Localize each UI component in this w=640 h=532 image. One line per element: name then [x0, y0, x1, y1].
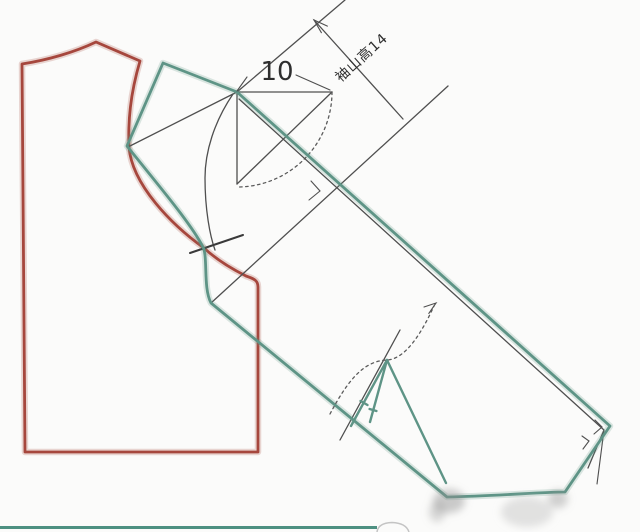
- armhole-shaping-curve: [205, 94, 233, 250]
- bodice-piece: [22, 42, 258, 452]
- bicep-line: [211, 86, 448, 303]
- pattern-canvas: 袖山高14 10: [0, 0, 640, 532]
- dotted-curve-arrowhead: [424, 303, 436, 313]
- sleeve-outline: [127, 63, 610, 497]
- bodice-outline: [22, 42, 258, 452]
- dart-leg-1: [351, 360, 387, 426]
- shoulder-extension-label: 10: [260, 57, 293, 87]
- sleeve-inner-construction-line: [239, 99, 604, 468]
- dart-center-line: [387, 360, 446, 483]
- smudge-blob-4: [429, 502, 445, 522]
- label-leader-right: [296, 75, 330, 90]
- page-bottom-edge: [0, 523, 409, 532]
- elbow-shaping-dotted-curve: [330, 306, 434, 414]
- sleeve-piece: [127, 63, 610, 497]
- pattern-drafting-diagram: 袖山高14 10: [0, 0, 640, 532]
- smudge-blob-2: [501, 497, 553, 527]
- bottom-rounded-tab: [377, 523, 409, 532]
- smudge-blob-3: [548, 490, 568, 508]
- sleeve-cap-height-label: 袖山高14: [332, 30, 392, 86]
- right-angle-mark-cuff-bottom: [582, 436, 589, 449]
- right-angle-mark-bicep: [309, 181, 320, 200]
- dimension-annotations: 袖山高14 10: [237, 20, 436, 414]
- dart-tick-2: [370, 409, 377, 411]
- bodice-outline-glow: [22, 42, 258, 452]
- elbow-line: [340, 330, 400, 440]
